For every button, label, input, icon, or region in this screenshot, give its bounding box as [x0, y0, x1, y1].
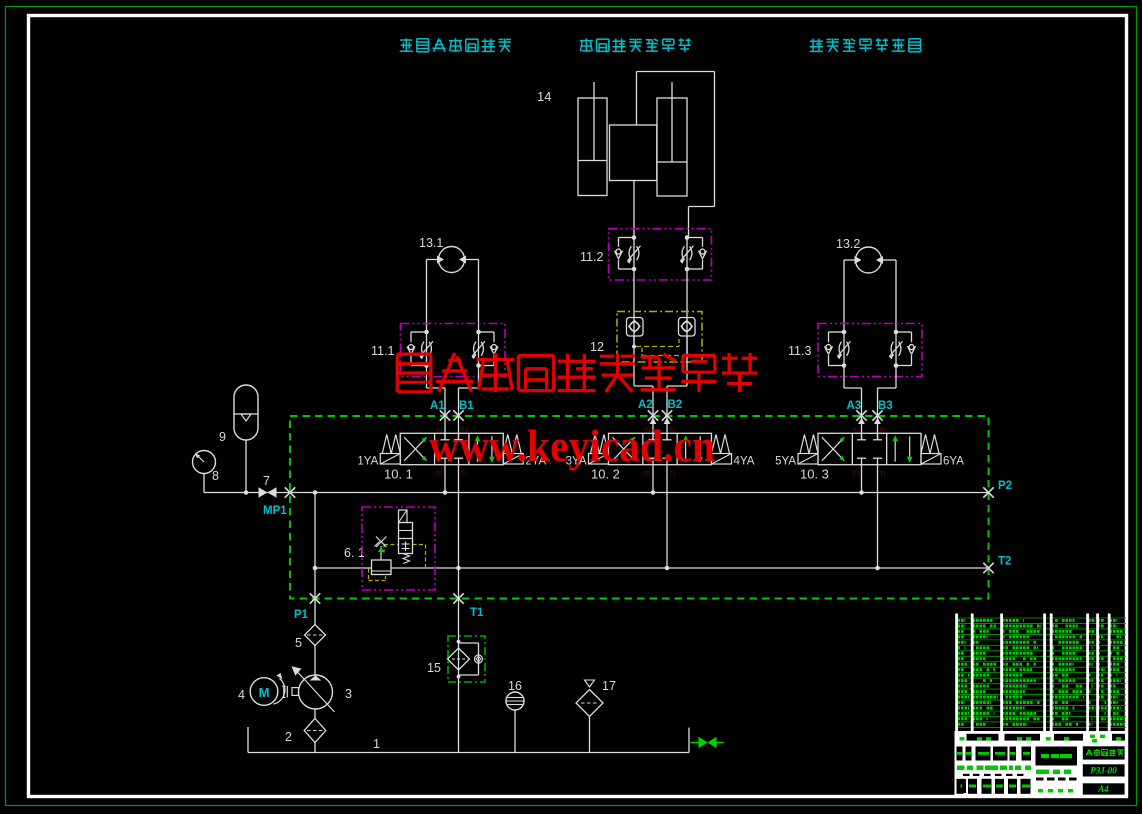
svg-text:10. 1: 10. 1	[384, 467, 413, 482]
svg-text:M: M	[259, 685, 270, 700]
svg-text:A1: A1	[430, 400, 445, 412]
svg-text:P1: P1	[644, 472, 652, 478]
svg-text:T2: T2	[998, 556, 1011, 568]
svg-text:B2: B2	[668, 399, 683, 411]
svg-text:5: 5	[295, 636, 302, 650]
svg-text:www.keyicad.cn: www.keyicad.cn	[429, 420, 715, 471]
svg-text:B1: B1	[459, 400, 474, 412]
svg-text:4: 4	[238, 688, 245, 702]
svg-text:13.1: 13.1	[419, 236, 443, 250]
svg-text:A2: A2	[638, 399, 653, 411]
svg-text:MP1: MP1	[263, 505, 287, 517]
svg-text:12: 12	[590, 340, 604, 354]
svg-text:P2: P2	[998, 480, 1012, 492]
svg-text:P1: P1	[436, 472, 444, 478]
svg-text:A4: A4	[1097, 784, 1109, 794]
svg-text:5YA: 5YA	[775, 456, 796, 468]
svg-text:8: 8	[212, 469, 219, 483]
svg-text:B3: B3	[880, 428, 888, 434]
svg-text:T1: T1	[470, 607, 484, 619]
svg-text:A3: A3	[847, 400, 862, 412]
svg-text:A3: A3	[853, 428, 861, 434]
svg-text:3: 3	[345, 687, 352, 701]
svg-text:7: 7	[263, 474, 270, 488]
svg-text:14: 14	[537, 89, 551, 104]
svg-text:T1: T1	[461, 472, 469, 478]
svg-text:13.2: 13.2	[836, 237, 860, 251]
svg-text:2: 2	[285, 730, 292, 744]
svg-text:9: 9	[219, 430, 226, 444]
svg-text:10. 3: 10. 3	[800, 467, 829, 482]
svg-text:P3J-00: P3J-00	[1090, 766, 1117, 776]
svg-text:B3: B3	[878, 400, 893, 412]
svg-text:17: 17	[602, 679, 616, 693]
svg-text:P1: P1	[853, 472, 861, 478]
svg-text:11.3: 11.3	[788, 344, 811, 358]
svg-text:15: 15	[427, 661, 441, 675]
svg-text:T1: T1	[669, 472, 677, 478]
svg-text:1YA: 1YA	[357, 456, 378, 468]
svg-text:1: 1	[373, 737, 380, 751]
svg-text:T1: T1	[880, 472, 888, 478]
svg-text:16: 16	[508, 679, 522, 693]
svg-text:4YA: 4YA	[734, 456, 755, 468]
svg-text:6YA: 6YA	[943, 456, 964, 468]
svg-text:P1: P1	[294, 609, 309, 621]
svg-text:11.2: 11.2	[580, 250, 603, 264]
svg-text:11.1: 11.1	[371, 344, 394, 358]
